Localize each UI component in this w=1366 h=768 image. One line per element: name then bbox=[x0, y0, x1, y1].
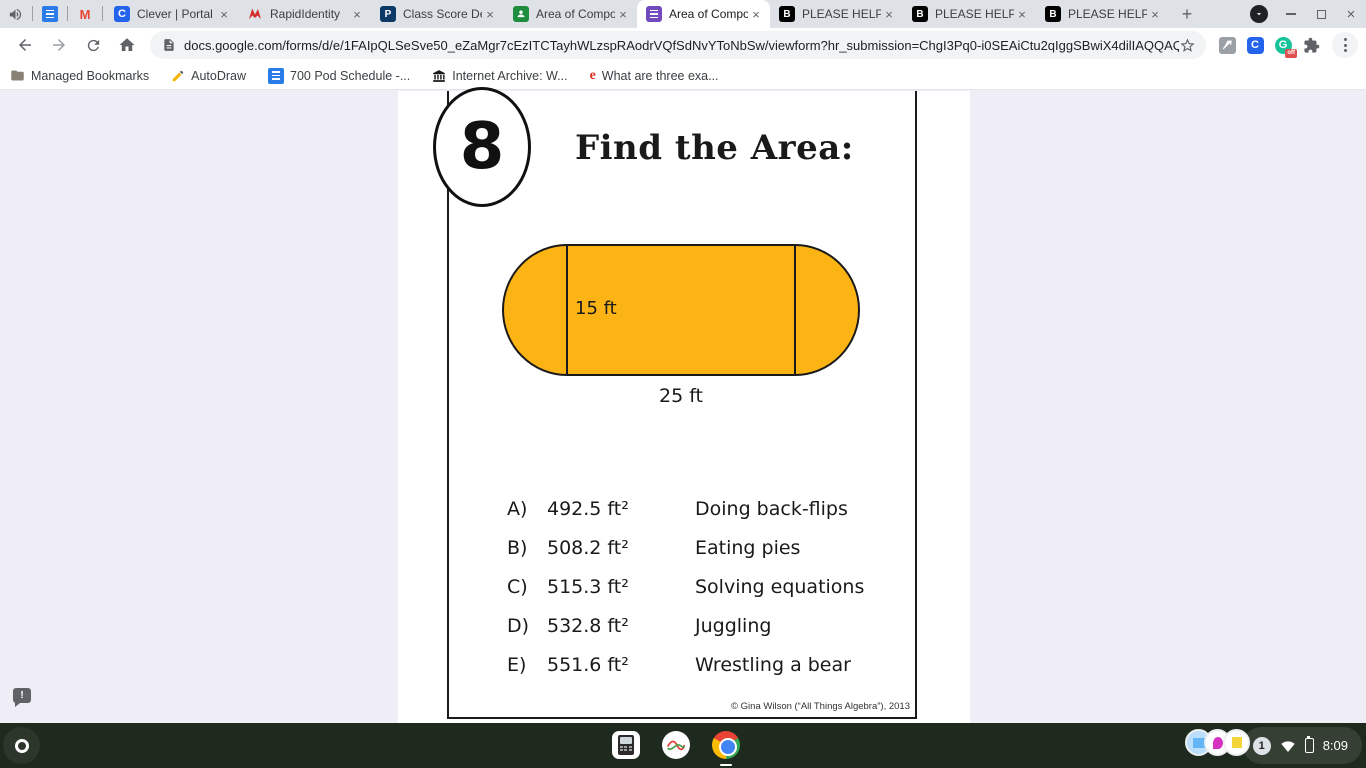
choice-letter: E) bbox=[507, 654, 547, 676]
puzzle-icon bbox=[1303, 37, 1320, 54]
tab-title: PLEASE HELPF bbox=[1068, 7, 1147, 21]
bookmark-label: 700 Pod Schedule -... bbox=[290, 69, 410, 83]
notification-count-badge: 1 bbox=[1253, 737, 1271, 755]
bookmark-label: Internet Archive: W... bbox=[452, 69, 567, 83]
bookmark-managed-folder[interactable]: Managed Bookmarks bbox=[10, 68, 149, 83]
reload-icon bbox=[85, 37, 102, 54]
choice-activity: Doing back-flips bbox=[695, 498, 907, 520]
graph-curves-icon bbox=[666, 735, 686, 755]
clever-extension-button[interactable]: C bbox=[1244, 34, 1266, 56]
worksheet-card: 8 Find the Area: 15 ft 25 ft A) 492.5 ft… bbox=[447, 91, 917, 719]
wifi-icon bbox=[1280, 738, 1296, 754]
home-icon bbox=[118, 36, 136, 54]
form-page: 8 Find the Area: 15 ft 25 ft A) 492.5 ft… bbox=[0, 91, 1366, 723]
address-bar[interactable]: docs.google.com/forms/d/e/1FAIpQLSeSve50… bbox=[150, 31, 1206, 59]
tab-please-help-1[interactable]: B PLEASE HELPF × bbox=[770, 0, 903, 28]
chrome-app-button[interactable] bbox=[712, 731, 740, 759]
tab-area-forms-active[interactable]: Area of Compo × bbox=[637, 0, 770, 28]
tab-close-icon[interactable]: × bbox=[1147, 6, 1163, 22]
question-title: Find the Area: bbox=[575, 128, 854, 168]
choice-row-e: E) 551.6 ft² Wrestling a bear bbox=[507, 645, 907, 684]
tab-please-help-2[interactable]: B PLEASE HELPF × bbox=[903, 0, 1036, 28]
window-controls: × bbox=[1276, 0, 1366, 28]
tab-clever-portal[interactable]: C Clever | Portal × bbox=[105, 0, 238, 28]
choice-letter: D) bbox=[507, 615, 547, 637]
tab-close-icon[interactable]: × bbox=[1014, 6, 1030, 22]
chevron-down-icon bbox=[1254, 9, 1264, 19]
tab-title: RapidIdentity bbox=[270, 7, 349, 21]
browser-menu-button[interactable] bbox=[1332, 32, 1358, 58]
powerschool-icon: P bbox=[380, 6, 396, 22]
bookmark-star-icon[interactable] bbox=[1179, 37, 1196, 54]
tab-title: PLEASE HELPF bbox=[935, 7, 1014, 21]
choice-letter: B) bbox=[507, 537, 547, 559]
choice-value: 551.6 ft² bbox=[547, 654, 695, 676]
chromeos-screen: M C Clever | Portal × RapidIdentity × P … bbox=[0, 0, 1366, 768]
tab-title: Clever | Portal bbox=[137, 7, 216, 21]
stadium-fill bbox=[503, 245, 859, 375]
choice-activity: Wrestling a bear bbox=[695, 654, 907, 676]
bookmark-label: Managed Bookmarks bbox=[31, 69, 149, 83]
tab-separator bbox=[102, 6, 103, 21]
brainly-icon: B bbox=[912, 6, 928, 22]
tab-rapididentity[interactable]: RapidIdentity × bbox=[238, 0, 371, 28]
launcher-ring-icon bbox=[15, 739, 29, 753]
choice-row-d: D) 532.8 ft² Juggling bbox=[507, 606, 907, 645]
tab-close-icon[interactable]: × bbox=[615, 6, 631, 22]
stadium-shape bbox=[501, 243, 861, 377]
choice-letter: C) bbox=[507, 576, 547, 598]
choice-activity: Juggling bbox=[695, 615, 907, 637]
red-e-icon: e bbox=[590, 68, 596, 84]
chromeos-shelf: 1 8:09 bbox=[0, 723, 1366, 768]
folder-icon bbox=[10, 68, 25, 83]
speaker-icon bbox=[8, 7, 23, 22]
chrome-icon bbox=[712, 731, 740, 759]
extensions-zone: C G off bbox=[1216, 32, 1358, 58]
choice-row-a: A) 492.5 ft² Doing back-flips bbox=[507, 489, 907, 528]
bookmarks-bar: Managed Bookmarks AutoDraw 700 Pod Sched… bbox=[0, 62, 1366, 90]
docs-icon bbox=[42, 6, 58, 22]
calculator-icon bbox=[618, 735, 634, 755]
forms-icon bbox=[646, 6, 662, 22]
reload-button[interactable] bbox=[79, 31, 107, 59]
tab-please-help-3[interactable]: B PLEASE HELPF × bbox=[1036, 0, 1169, 28]
tab-close-icon[interactable]: × bbox=[349, 6, 365, 22]
clever-icon: C bbox=[114, 6, 130, 22]
forward-arrow-icon bbox=[50, 36, 68, 54]
share-icon bbox=[1219, 37, 1236, 54]
battery-icon bbox=[1305, 738, 1314, 753]
close-window-button[interactable]: × bbox=[1336, 0, 1366, 28]
page-info-icon[interactable] bbox=[162, 38, 176, 52]
choice-activity: Eating pies bbox=[695, 537, 907, 559]
back-button[interactable] bbox=[11, 31, 39, 59]
form-content-column: 8 Find the Area: 15 ft 25 ft A) 492.5 ft… bbox=[398, 91, 970, 723]
bookmark-label: What are three exa... bbox=[602, 69, 719, 83]
tab-separator bbox=[32, 6, 33, 21]
tab-strip: M C Clever | Portal × RapidIdentity × P … bbox=[0, 0, 1366, 28]
tab-close-icon[interactable]: × bbox=[482, 6, 498, 22]
bookmark-label: AutoDraw bbox=[191, 69, 246, 83]
launcher-button[interactable] bbox=[3, 727, 40, 764]
restore-button[interactable] bbox=[1306, 0, 1336, 28]
minimize-button[interactable] bbox=[1276, 0, 1306, 28]
choice-activity: Solving equations bbox=[695, 576, 907, 598]
question-number-circle: 8 bbox=[433, 87, 531, 207]
choice-row-c: C) 515.3 ft² Solving equations bbox=[507, 567, 907, 606]
bookmark-internet-archive[interactable]: Internet Archive: W... bbox=[432, 69, 567, 83]
width-dimension-label: 25 ft bbox=[501, 385, 861, 407]
status-tray[interactable]: 1 8:09 bbox=[1243, 727, 1362, 764]
choice-row-b: B) 508.2 ft² Eating pies bbox=[507, 528, 907, 567]
tote-holding-space[interactable] bbox=[1185, 729, 1250, 756]
tab-title: Area of Compo bbox=[669, 7, 748, 21]
question-number: 8 bbox=[460, 110, 505, 184]
answer-choices: A) 492.5 ft² Doing back-flips B) 508.2 f… bbox=[507, 489, 907, 684]
pinned-tab-gmail[interactable]: M bbox=[70, 0, 100, 28]
bookmark-pod-schedule[interactable]: 700 Pod Schedule -... bbox=[268, 68, 410, 84]
tab-close-icon[interactable]: × bbox=[748, 6, 764, 22]
screenshare-extension-button[interactable] bbox=[1216, 34, 1238, 56]
tab-close-icon[interactable]: × bbox=[881, 6, 897, 22]
tab-title: Area of Compo bbox=[536, 7, 615, 21]
grammarly-extension-button[interactable]: G off bbox=[1272, 34, 1294, 56]
copyright-text: © Gina Wilson (“All Things Algebra”), 20… bbox=[731, 701, 910, 712]
gmail-icon: M bbox=[77, 6, 93, 22]
grammarly-off-badge: off bbox=[1285, 49, 1297, 58]
brainly-icon: B bbox=[779, 6, 795, 22]
new-tab-button[interactable]: + bbox=[1173, 0, 1201, 28]
archive-icon bbox=[432, 69, 446, 83]
clever-icon: C bbox=[1247, 37, 1264, 54]
pinned-tab-docs[interactable] bbox=[35, 0, 65, 28]
height-dimension-label: 15 ft bbox=[575, 298, 617, 319]
home-button[interactable] bbox=[113, 31, 141, 59]
bookmark-three-examples[interactable]: e What are three exa... bbox=[590, 68, 719, 84]
choice-value: 492.5 ft² bbox=[547, 498, 695, 520]
forward-button[interactable] bbox=[45, 31, 73, 59]
choice-value: 508.2 ft² bbox=[547, 537, 695, 559]
shelf-apps bbox=[612, 731, 740, 759]
classroom-icon bbox=[513, 6, 529, 22]
pencil-icon bbox=[171, 69, 185, 83]
tab-area-classroom[interactable]: Area of Compo × bbox=[504, 0, 637, 28]
url-text[interactable]: docs.google.com/forms/d/e/1FAIpQLSeSve50… bbox=[184, 38, 1179, 53]
tab-separator bbox=[67, 6, 68, 21]
brainly-icon: B bbox=[1045, 6, 1061, 22]
choice-letter: A) bbox=[507, 498, 547, 520]
graphing-app-button[interactable] bbox=[662, 731, 690, 759]
back-arrow-icon bbox=[16, 36, 34, 54]
tab-close-icon[interactable]: × bbox=[216, 6, 232, 22]
tab-title: Class Score De bbox=[403, 7, 482, 21]
tab-search-button[interactable] bbox=[1250, 5, 1268, 23]
active-app-indicator bbox=[720, 764, 732, 767]
choice-value: 515.3 ft² bbox=[547, 576, 695, 598]
extensions-menu-button[interactable] bbox=[1300, 34, 1322, 56]
tab-title: PLEASE HELPF bbox=[802, 7, 881, 21]
clock-text: 8:09 bbox=[1323, 738, 1348, 753]
rapididentity-icon bbox=[247, 6, 263, 22]
browser-toolbar: docs.google.com/forms/d/e/1FAIpQLSeSve50… bbox=[0, 28, 1366, 62]
bookmark-autodraw[interactable]: AutoDraw bbox=[171, 69, 246, 83]
docs-icon bbox=[268, 68, 284, 84]
report-abuse-icon[interactable]: ! bbox=[13, 688, 31, 703]
pinned-tab-audio[interactable] bbox=[0, 0, 30, 28]
calculator-app-button[interactable] bbox=[612, 731, 640, 759]
choice-value: 532.8 ft² bbox=[547, 615, 695, 637]
tab-class-score[interactable]: P Class Score De × bbox=[371, 0, 504, 28]
